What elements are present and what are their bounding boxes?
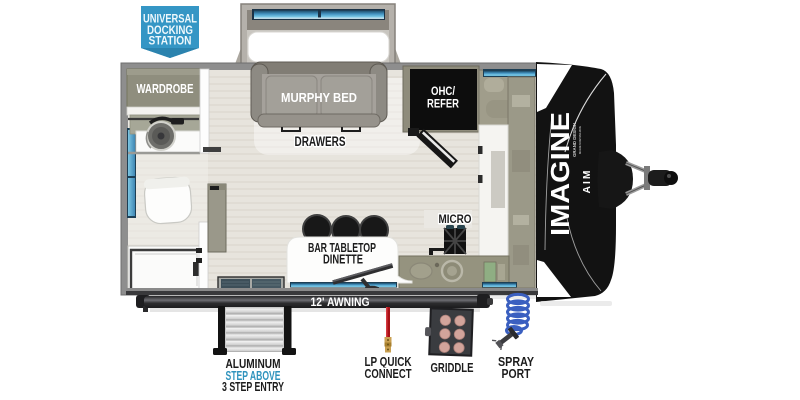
svg-text:12' AWNING: 12' AWNING — [311, 297, 370, 309]
svg-text:CONNECT: CONNECT — [365, 367, 412, 381]
svg-text:MURPHY BED: MURPHY BED — [281, 90, 357, 105]
svg-text:MICRO: MICRO — [439, 212, 472, 226]
svg-text:AIM: AIM — [582, 169, 593, 194]
svg-text:DINETTE: DINETTE — [323, 253, 363, 267]
svg-text:REFER: REFER — [427, 97, 459, 111]
svg-text:WARDROBE: WARDROBE — [137, 81, 194, 96]
svg-text:STATION: STATION — [149, 34, 192, 48]
svg-text:PORT: PORT — [502, 367, 531, 381]
svg-text:GRAND DESIGN: GRAND DESIGN — [572, 123, 577, 157]
svg-text:IMAGINE SOMETHING MORE: IMAGINE SOMETHING MORE — [578, 126, 582, 154]
svg-text:IMAGINE: IMAGINE — [545, 112, 575, 236]
svg-text:GRIDDLE: GRIDDLE — [431, 361, 474, 375]
svg-text:DRAWERS: DRAWERS — [295, 134, 346, 149]
svg-text:3 STEP ENTRY: 3 STEP ENTRY — [222, 380, 284, 394]
